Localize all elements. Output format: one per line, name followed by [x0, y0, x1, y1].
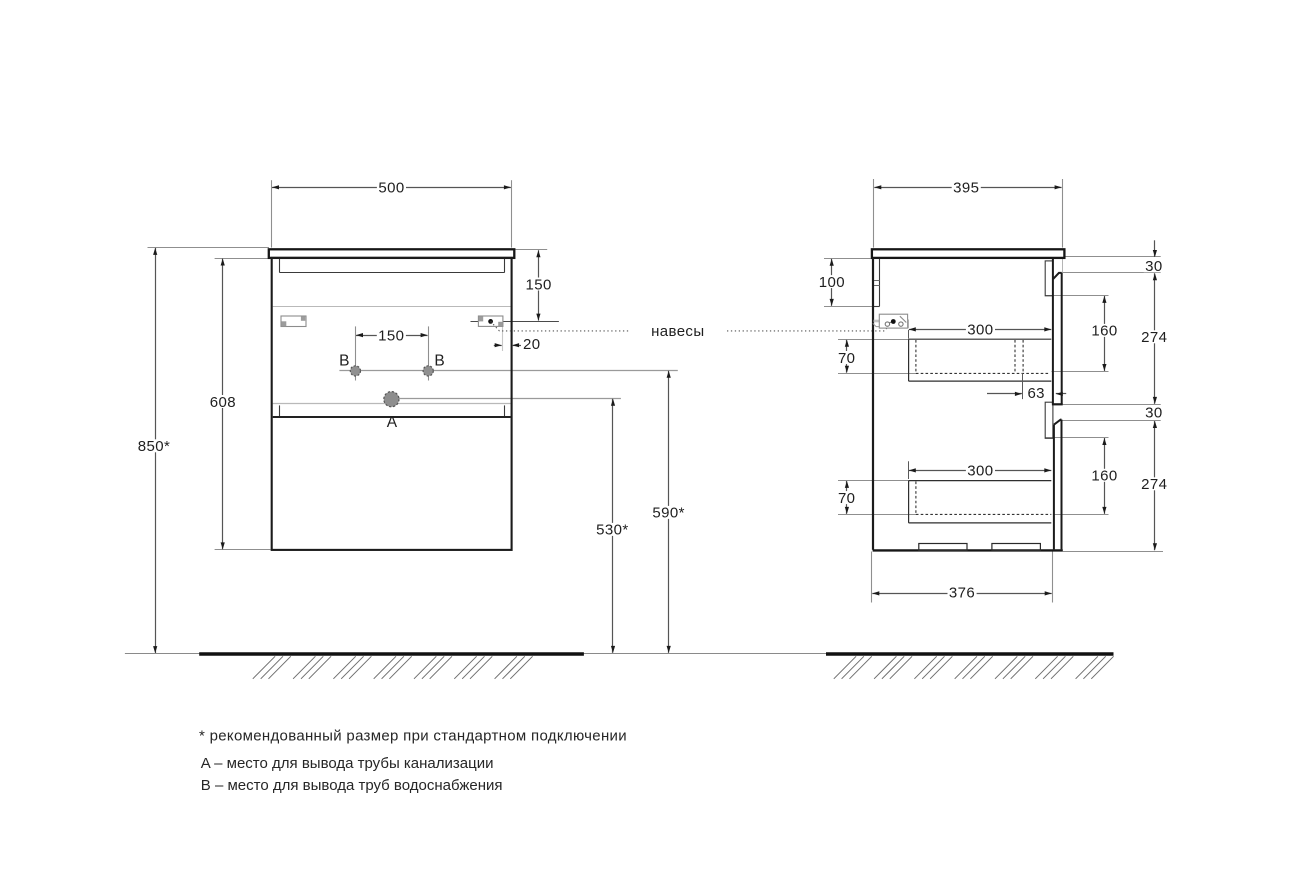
svg-text:150: 150 [378, 327, 404, 344]
svg-text:20: 20 [523, 336, 541, 353]
svg-text:608: 608 [210, 394, 236, 411]
svg-text:B: B [339, 353, 349, 370]
svg-text:30: 30 [1145, 404, 1163, 421]
svg-text:70: 70 [838, 490, 856, 507]
svg-text:274: 274 [1141, 329, 1167, 346]
svg-text:63: 63 [1027, 385, 1045, 402]
svg-text:300: 300 [967, 321, 993, 338]
svg-text:A – место для вывода трубы кан: A – место для вывода трубы канализации [201, 755, 494, 772]
svg-text:160: 160 [1091, 323, 1117, 340]
svg-text:* рекомендованный размер при с: * рекомендованный размер при стандартном… [199, 728, 627, 745]
svg-text:300: 300 [967, 462, 993, 479]
svg-text:500: 500 [378, 179, 404, 196]
svg-text:B: B [434, 353, 444, 370]
svg-text:A: A [387, 414, 398, 431]
svg-text:70: 70 [838, 350, 856, 367]
svg-text:530*: 530* [596, 522, 628, 539]
svg-text:30: 30 [1145, 258, 1163, 275]
svg-text:395: 395 [953, 179, 979, 196]
svg-text:590*: 590* [652, 505, 684, 522]
svg-text:150: 150 [525, 276, 551, 293]
svg-text:274: 274 [1141, 476, 1167, 493]
svg-text:B – место для вывода труб водо: B – место для вывода труб водоснабжения [201, 777, 503, 794]
svg-text:850*: 850* [138, 438, 170, 455]
svg-text:376: 376 [949, 585, 975, 602]
svg-text:навесы: навесы [651, 323, 704, 340]
svg-text:100: 100 [819, 274, 845, 291]
svg-text:160: 160 [1091, 468, 1117, 485]
